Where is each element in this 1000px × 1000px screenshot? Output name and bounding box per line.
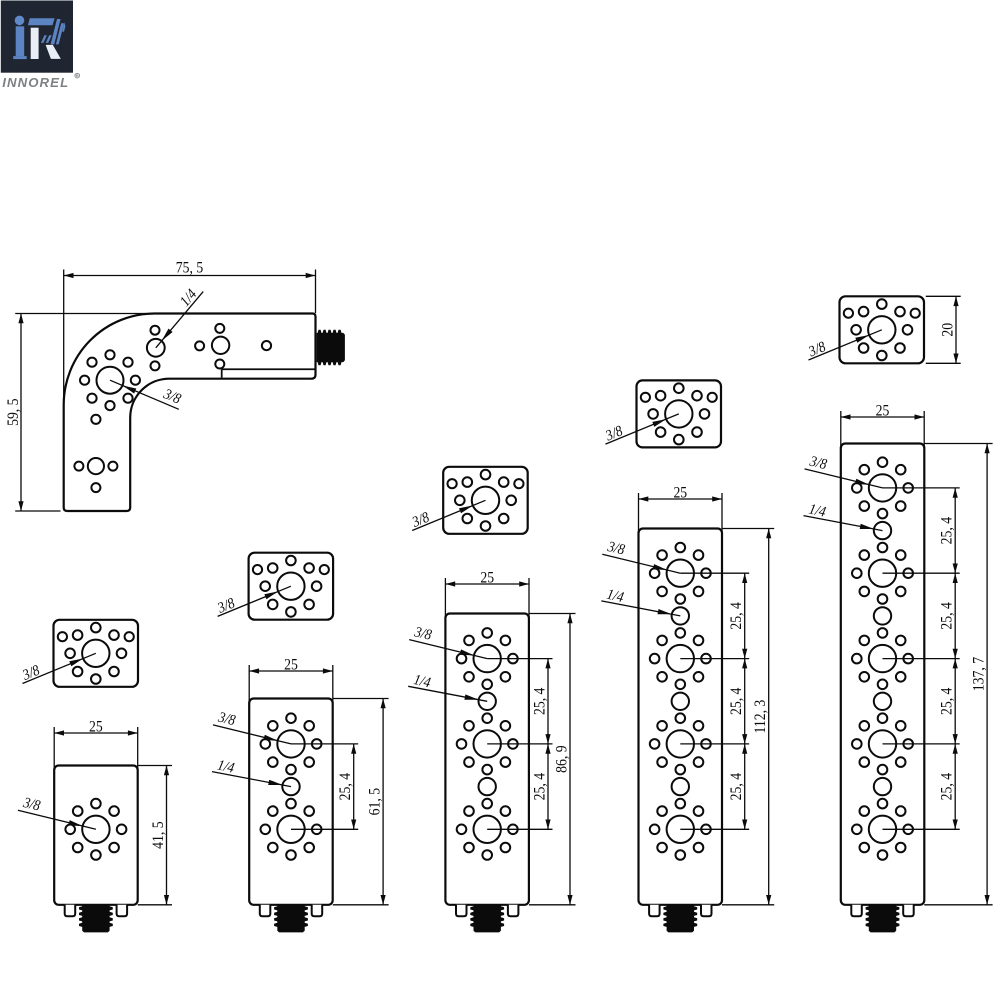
svg-text:25, 4: 25, 4 <box>728 687 745 715</box>
svg-text:25, 4: 25, 4 <box>728 772 745 800</box>
svg-text:41, 5: 41, 5 <box>150 821 167 848</box>
svg-text:25, 4: 25, 4 <box>532 687 549 715</box>
svg-text:86, 9: 86, 9 <box>554 745 571 772</box>
svg-text:25, 4: 25, 4 <box>939 772 956 800</box>
svg-text:75, 5: 75, 5 <box>176 260 203 277</box>
svg-text:112, 3: 112, 3 <box>752 700 769 734</box>
svg-text:25, 4: 25, 4 <box>939 516 956 544</box>
svg-text:R: R <box>76 73 79 78</box>
svg-text:61, 5: 61, 5 <box>367 788 384 815</box>
svg-text:25, 4: 25, 4 <box>337 772 354 800</box>
svg-text:25, 4: 25, 4 <box>532 772 549 800</box>
svg-text:25, 4: 25, 4 <box>728 602 745 630</box>
svg-text:59, 5: 59, 5 <box>5 398 22 425</box>
svg-text:25: 25 <box>284 657 298 674</box>
svg-text:25, 4: 25, 4 <box>939 687 956 715</box>
svg-text:25: 25 <box>89 719 103 736</box>
svg-text:25: 25 <box>673 485 687 502</box>
svg-text:25: 25 <box>480 570 494 587</box>
svg-text:INNOREL: INNOREL <box>2 75 69 90</box>
svg-text:137, 7: 137, 7 <box>971 657 988 691</box>
svg-text:25: 25 <box>876 403 890 420</box>
svg-text:20: 20 <box>940 323 957 337</box>
svg-text:25, 4: 25, 4 <box>939 602 956 630</box>
